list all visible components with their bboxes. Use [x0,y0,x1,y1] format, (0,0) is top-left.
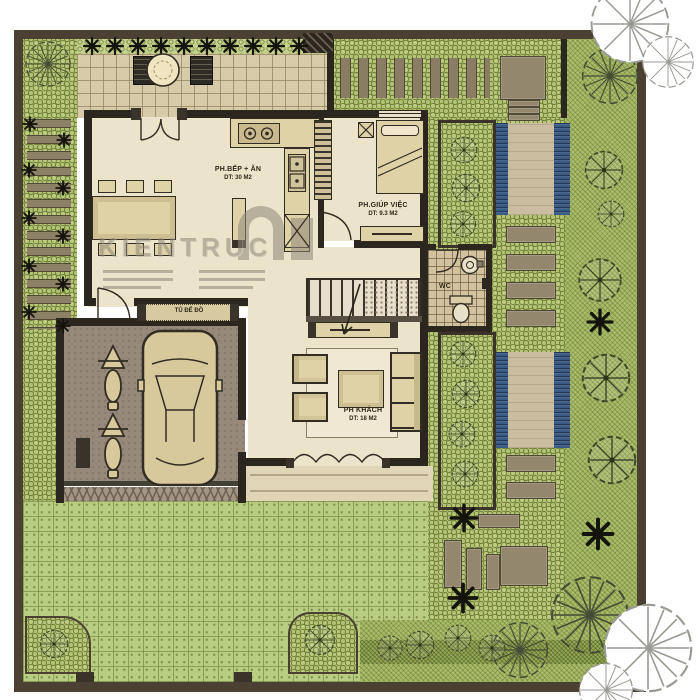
floor-plan-canvas: PH.BẾP + ĂN DT: 30 M2 PH.GIÚP VIỆC DT: 9… [0,0,700,700]
cabinet-end [390,322,398,338]
wall [420,326,492,332]
room-label-maid: PH.GIÚP VIỆC DT: 9.3 M2 [340,202,426,218]
dining-chair [154,180,172,193]
kitchen-sink [288,154,306,192]
window-mullion [378,113,422,114]
staircase-upper-flight [364,280,420,320]
door-jamb [286,458,294,468]
garden-step [508,114,540,121]
side-path-slabs [27,119,71,329]
water-channel [554,123,570,215]
pillow [381,125,419,136]
stone-platform [500,546,548,586]
watermark-line [103,278,173,281]
watermark-logo-block [291,218,313,260]
garden-fence [561,39,567,118]
bottom-shrub-strip [360,640,640,664]
stepping-slab [444,540,462,588]
stepping-slab [506,282,556,299]
dining-chair [98,180,116,193]
wall [56,318,64,503]
window [378,110,422,118]
gate-post [234,672,252,682]
terrace-planting-strip [77,39,330,54]
boundary-wall-left [14,30,23,692]
boundary-wall-right [637,30,646,692]
wall [426,244,436,250]
planting-bed [288,612,358,674]
driveway [60,487,245,501]
door-jamb [131,108,141,120]
cooktop [238,123,280,144]
room-area: DT: 30 M2 [195,175,281,183]
watermark-line [103,286,161,289]
watermark-text: KIENTRUC [98,232,272,263]
boundary-wall-bottom [14,682,646,692]
room-area: DT: 18 M2 [320,416,406,424]
stepping-slab [506,226,556,243]
garage-wall-fixture [76,438,90,468]
storage-cabinet-label: TỦ ĐỂ ĐỒ [146,308,232,316]
stepping-slab [506,455,556,472]
room-area: DT: 9.3 M2 [340,211,426,219]
gate-post [76,672,94,682]
door-jamb [382,458,390,468]
water-channel [554,352,570,448]
stepping-slab [478,514,520,528]
kitchen-shelf-unit [314,120,332,200]
cabinet-name: TỦ ĐỂ ĐỒ [146,308,232,316]
room-label-kitchen: PH.BẾP + ĂN DT: 30 M2 [195,166,281,182]
armchair [292,354,328,384]
architect-watermark: KIENTRUC [95,198,355,303]
cabinet-end [137,304,146,321]
wall [486,244,492,332]
wall [238,452,246,503]
coffee-table [338,370,384,408]
bedside-table [358,122,374,138]
room-name: PH.GIÚP VIỆC [340,202,426,211]
planter-box [438,120,496,248]
room-name: PH.BẾP + ĂN [195,166,281,175]
terrace-step-line [250,490,428,492]
garden-step [508,100,540,107]
room-name: PH KHÁCH [320,407,406,416]
terrace-chair [190,56,213,85]
wall [238,318,246,420]
cabinet-handle [330,329,370,331]
room-label-living: PH KHÁCH DT: 18 M2 [320,407,406,423]
garage-door-line [60,481,246,486]
door-jamb [177,108,187,120]
top-garden-slabs [340,58,490,98]
garden-walkway [508,123,554,215]
left-side-strip [23,331,60,501]
stepping-slab [506,310,556,327]
entry-gate [303,33,333,53]
wall [384,458,428,466]
planter-box [438,332,496,510]
cabinet-end [308,322,316,338]
terrace-step-line [250,474,428,476]
corner-planting-bed [25,616,91,674]
room-label-wc: WC [430,283,460,292]
dining-chair [126,180,144,193]
stepping-slab [506,482,556,499]
wall [458,244,492,250]
room-name: WC [430,283,460,292]
watermark-line [199,278,265,281]
watermark-line [199,270,265,273]
wardrobe-handle [372,233,412,235]
watermark-line [199,286,253,289]
right-lawn [565,39,640,682]
garden-step [508,107,540,114]
stepping-slab [466,548,482,590]
stepping-slab [486,554,500,590]
watermark-line [103,270,173,273]
wall [84,110,92,306]
stepping-slab [506,254,556,271]
garden-walkway [508,352,554,448]
terrace-chair [133,56,156,85]
living-room-terrace [245,466,433,501]
garden-platform [500,56,546,100]
